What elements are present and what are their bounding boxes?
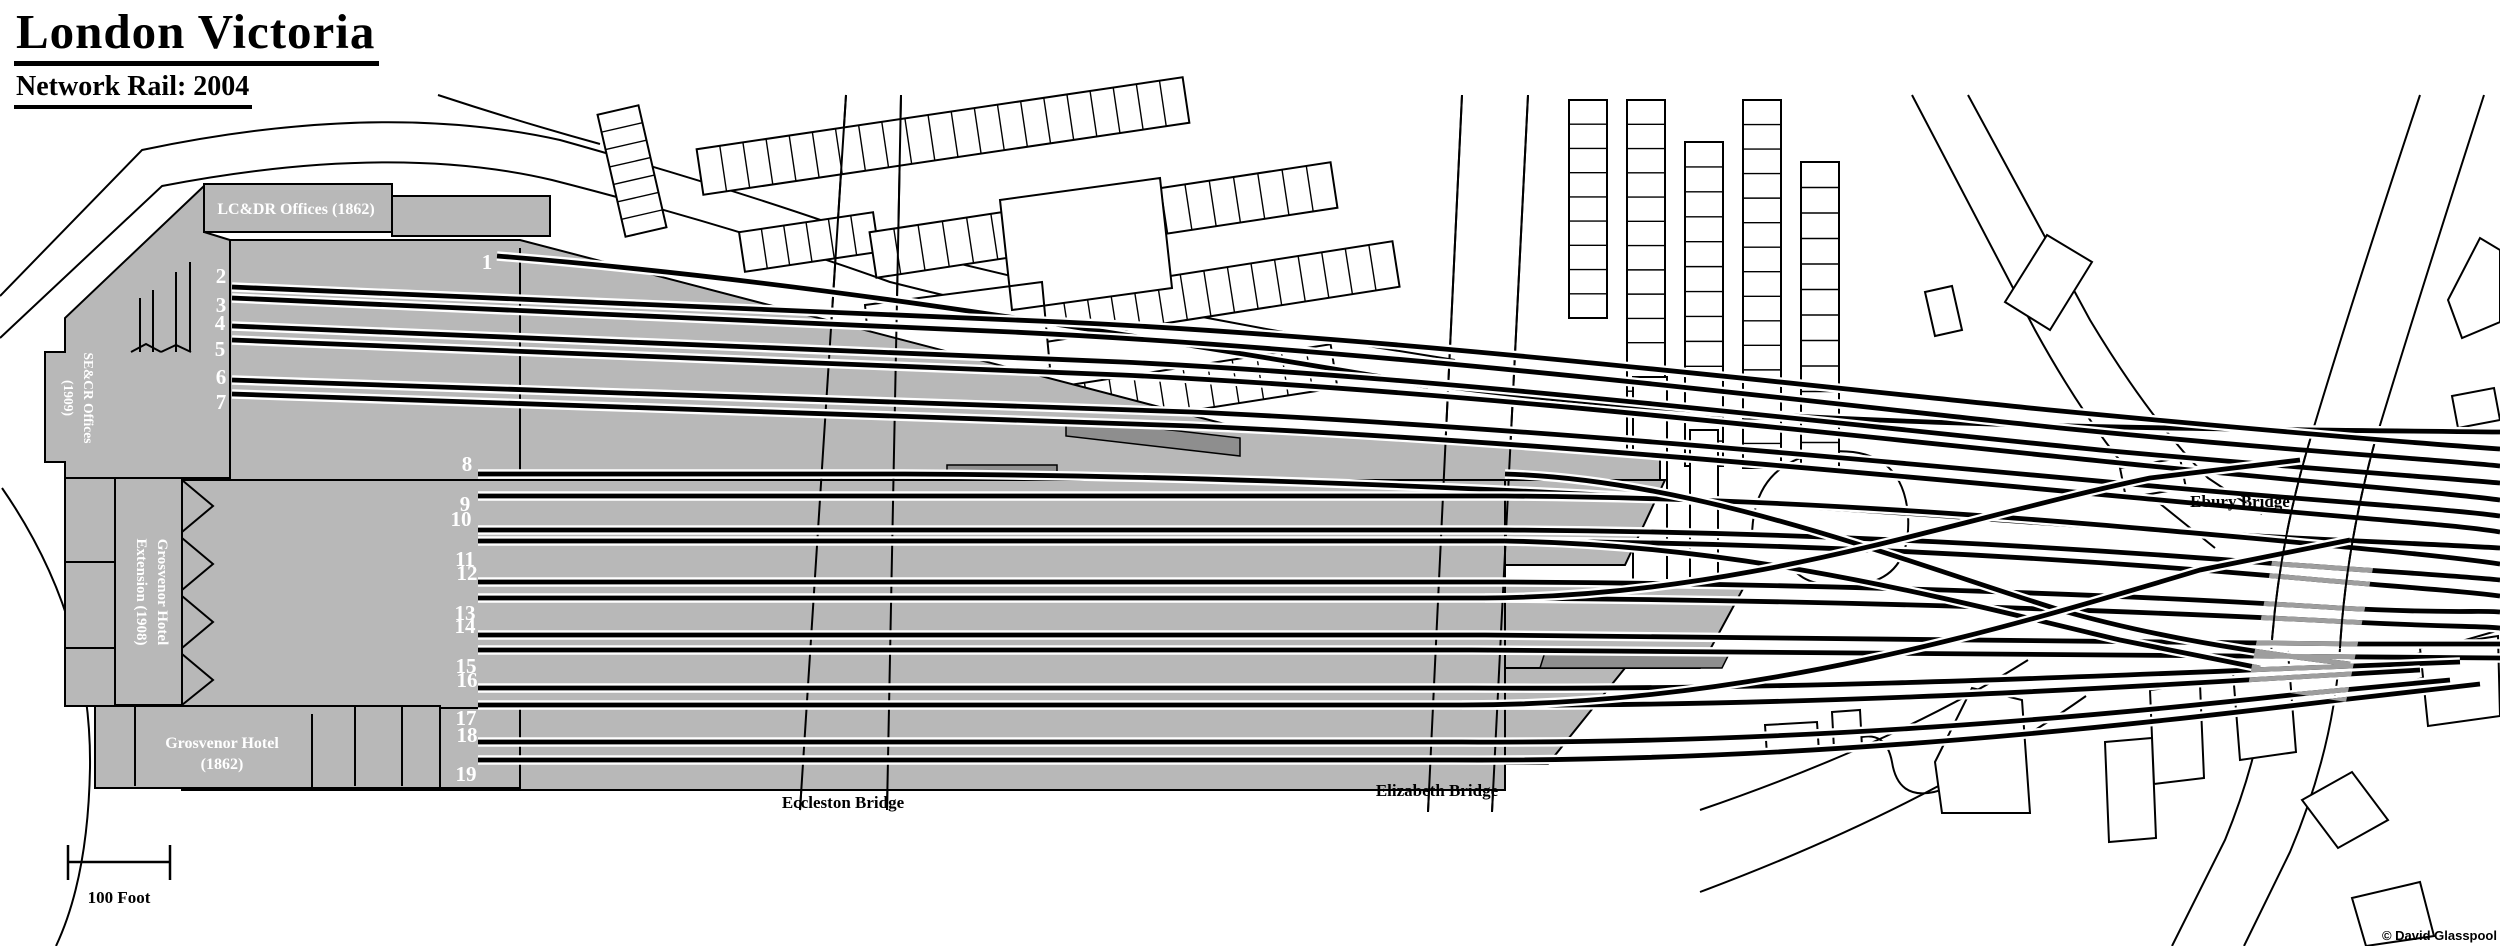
secr-offices-label-line1: SE&CR Offices (81, 352, 96, 443)
lcdr-offices-label: LC&DR Offices (1862) (217, 201, 374, 218)
platform-number: 10 (451, 507, 472, 531)
terraced-row (598, 105, 667, 236)
page-title: London Victoria (14, 4, 379, 66)
grosvenor-ext-label-line1: Grosvenor Hotel (154, 539, 170, 646)
west-annex-rooms (65, 478, 115, 706)
eccleston-bridge-label: Eccleston Bridge (782, 793, 905, 812)
secr-offices-label-line2: (1909) (61, 380, 76, 416)
platform-number: 14 (455, 614, 477, 638)
station-map-svg: LC&DR Offices (1862) SE&CR Offices (1909… (0, 0, 2500, 946)
platform-number: 4 (215, 311, 226, 335)
grosvenor-ext-label-line2: Extension (1908) (133, 538, 149, 645)
platform-number: 16 (457, 668, 478, 692)
page-subtitle: Network Rail: 2004 (14, 70, 252, 109)
scale-bar-label: 100 Foot (88, 888, 151, 907)
copyright-credit: © David Glasspool (2382, 928, 2497, 943)
platform-number: 2 (216, 264, 227, 288)
terraced-row (697, 77, 1190, 195)
terraced-row (739, 212, 879, 272)
grosvenor-hotel-label-line2: (1862) (201, 756, 244, 773)
offices-east-building (392, 196, 550, 236)
platform-number: 8 (462, 452, 473, 476)
station-west-wedge (45, 186, 230, 478)
platform-extension-c (1505, 668, 1625, 764)
platform-number: 12 (457, 561, 478, 585)
terraced-row (1569, 100, 1607, 318)
platform-number: 6 (216, 365, 227, 389)
platform-number: 7 (216, 390, 227, 414)
ebury-bridge-label: Ebury Bridge (2190, 492, 2290, 511)
platform-number: 1 (482, 250, 493, 274)
grosvenor-hotel-label-line1: Grosvenor Hotel (165, 735, 279, 752)
elizabeth-bridge-label: Elizabeth Bridge (1376, 781, 1499, 800)
platform-number: 19 (456, 762, 477, 786)
platform-number: 5 (215, 337, 226, 361)
title-block: London Victoria Network Rail: 2004 (14, 4, 379, 109)
platform-number: 18 (457, 723, 478, 747)
track-diagram-page: London Victoria Network Rail: 2004 (0, 0, 2500, 946)
hotel-east-annex (440, 708, 520, 788)
